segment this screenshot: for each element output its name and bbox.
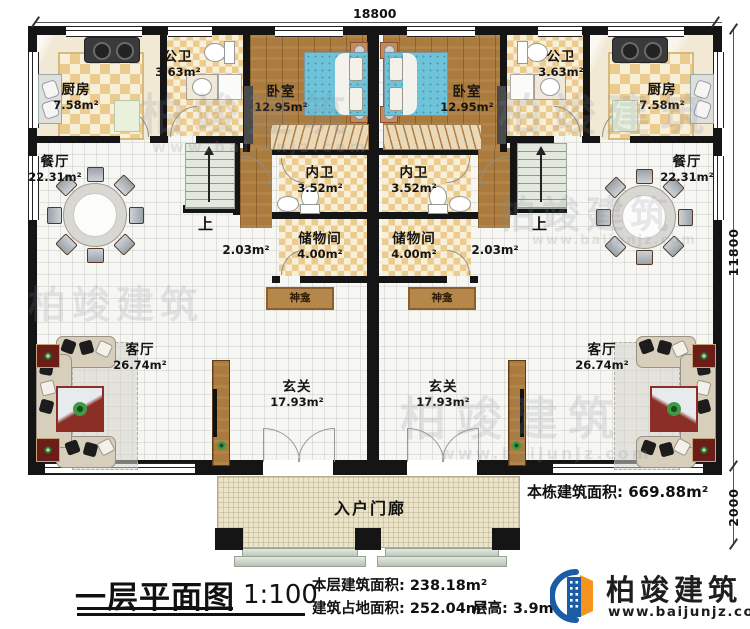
watermark-text: 柏竣建筑 — [28, 286, 204, 324]
floor-plan: 上 上 — [0, 0, 750, 629]
stairs-arrow-head — [536, 146, 546, 155]
burner — [93, 42, 111, 60]
wall-storage-bottom-left — [272, 276, 280, 283]
dining-chair — [47, 207, 62, 224]
room-area: 17.93m² — [257, 396, 337, 410]
plant — [701, 447, 708, 454]
corridor-area-right: 2.03m² — [455, 243, 535, 257]
dimension-top-label: 18800 — [350, 6, 400, 21]
watermark-text: 柏竣建筑 — [140, 94, 356, 138]
toilet-tank — [300, 204, 320, 214]
room-area: 22.31m² — [647, 171, 727, 185]
window — [608, 26, 684, 37]
shrine-label: 神龛 — [432, 292, 453, 304]
room-area: 4.00m² — [280, 248, 360, 262]
porch-column — [215, 528, 243, 550]
floor-area-text: 本层建筑面积: 238.18m² — [312, 574, 487, 595]
plant — [701, 353, 708, 360]
burner — [116, 42, 134, 60]
toilet-tank — [224, 41, 235, 64]
room-label-living-left: 客厅 26.74m² — [100, 343, 180, 372]
dining-chair — [87, 248, 104, 263]
side-table — [36, 344, 60, 368]
room-name: 厨房 — [36, 83, 116, 99]
room-area: 12.95m² — [427, 101, 507, 115]
burner — [644, 42, 662, 60]
window — [713, 52, 724, 128]
building-total-area: 本栋建筑面积: 669.88m² — [527, 481, 708, 502]
room-name: 卧室 — [427, 85, 507, 101]
watermark-url: www.baijunjz.com — [532, 234, 697, 247]
wall-h-left — [36, 136, 120, 143]
plant — [73, 402, 87, 416]
floor-height-text: 层高: 3.9m — [473, 597, 554, 618]
brand-url: www.baijunjz.com — [608, 604, 750, 620]
dining-table-top — [73, 193, 117, 237]
shrine-label: 神龛 — [290, 292, 311, 304]
basin — [277, 196, 299, 212]
porch-label: 入户门廊 — [327, 495, 413, 519]
room-area: 7.58m² — [36, 99, 116, 113]
tv-wall — [212, 360, 230, 466]
room-name: 客厅 — [100, 343, 180, 359]
burner — [621, 42, 639, 60]
room-area: 4.00m² — [374, 248, 454, 262]
tv — [213, 389, 217, 437]
basin — [449, 196, 471, 212]
shrine-left: 神龛 — [266, 287, 334, 310]
room-label-storage-left: 储物间 4.00m² — [280, 232, 360, 261]
window — [168, 26, 212, 37]
brand-logo: 柏竣建筑 www.baijunjz.com — [550, 563, 750, 627]
room-name: 内卫 — [280, 166, 360, 182]
footprint-area-text: 建筑占地面积: 252.04m² — [312, 597, 487, 618]
room-area: 26.74m² — [562, 359, 642, 373]
drawing-scale: 1:100 — [243, 580, 318, 610]
room-area: 22.31m² — [15, 171, 95, 185]
room-area: 3.63m² — [138, 66, 218, 80]
room-label-bath-left: 公卫 3.63m² — [138, 50, 218, 79]
watermark-url: www.baijunjz.com — [440, 446, 651, 462]
room-name: 玄关 — [257, 380, 337, 396]
title-underline — [77, 607, 233, 610]
porch-column — [355, 528, 381, 550]
room-name: 储物间 — [280, 232, 360, 248]
room-name: 客厅 — [562, 343, 642, 359]
room-name: 餐厅 — [647, 155, 727, 171]
pillow — [389, 87, 403, 111]
dimension-porch-label: 2000 — [726, 488, 741, 527]
coffee-table — [56, 386, 104, 432]
room-area: 3.52m² — [280, 182, 360, 196]
room-label-storage-right: 储物间 4.00m² — [374, 232, 454, 261]
watermark-text: 柏竣建筑 — [400, 396, 624, 442]
wardrobe — [383, 124, 482, 150]
room-name: 储物间 — [374, 232, 454, 248]
brand-logo-icon — [550, 565, 602, 629]
toilet-tank — [428, 204, 448, 214]
wall-storage-bottom-left — [300, 276, 368, 283]
room-label-kitchen-left: 厨房 7.58m² — [36, 83, 116, 112]
room-label-innerbath-right: 内卫 3.52m² — [374, 166, 454, 195]
side-table — [692, 438, 716, 462]
dining-chair — [129, 207, 144, 224]
watermark-text: 柏竣建筑 — [498, 94, 714, 138]
window — [538, 26, 582, 37]
plant — [45, 447, 52, 454]
bed-sheet — [403, 53, 417, 115]
wall-storage-bottom-right — [379, 276, 447, 283]
room-label-bath-right: 公卫 3.63m² — [521, 50, 601, 79]
corridor-area-left: 2.03m² — [206, 243, 286, 257]
room-label-innerbath-left: 内卫 3.52m² — [280, 166, 360, 195]
stove — [612, 37, 668, 63]
room-area: 3.52m² — [374, 182, 454, 196]
pillow — [349, 57, 363, 81]
brand-name: 柏竣建筑 — [606, 567, 742, 609]
porch-step — [234, 556, 366, 567]
room-name: 公卫 — [138, 50, 218, 66]
dimension-line-top — [35, 22, 722, 23]
door-opening — [263, 460, 333, 475]
room-name: 公卫 — [521, 50, 601, 66]
coffee-table — [650, 386, 698, 432]
room-name: 内卫 — [374, 166, 454, 182]
stairs-arrow — [208, 154, 210, 202]
room-label-living-right: 客厅 26.74m² — [562, 343, 642, 372]
room-area: 3.63m² — [521, 66, 601, 80]
room-area: 26.74m² — [100, 359, 180, 373]
plant — [667, 402, 681, 416]
dimension-side-label: 11800 — [726, 228, 741, 277]
side-table — [692, 344, 716, 368]
room-label-dining-left: 餐厅 22.31m² — [15, 155, 95, 184]
fridge — [114, 100, 140, 132]
window — [407, 26, 475, 37]
watermark-text: 柏竣建筑 — [498, 196, 674, 234]
porch-step — [377, 556, 507, 567]
window — [275, 26, 343, 37]
stairs-up-label: 上 — [198, 213, 213, 234]
pillow — [389, 57, 403, 81]
plant — [217, 441, 226, 450]
dining-chair — [636, 250, 653, 265]
dimension-tick — [729, 538, 738, 550]
stove — [84, 37, 140, 63]
porch-column — [492, 528, 520, 550]
dining-chair — [678, 209, 693, 226]
watermark-url: www.baijunjz.com — [152, 140, 369, 155]
wall-storage-bottom-right — [470, 276, 478, 283]
room-name: 餐厅 — [15, 155, 95, 171]
room-label-bedroom-right: 卧室 12.95m² — [427, 85, 507, 114]
drawing-title: 一层平面图 — [75, 572, 235, 617]
plant — [45, 353, 52, 360]
window — [66, 26, 142, 37]
wall-innerbath-storage-left — [272, 212, 368, 219]
room-label-dining-right: 餐厅 22.31m² — [647, 155, 727, 184]
shrine-right: 神龛 — [408, 287, 476, 310]
room-label-foyer-left: 玄关 17.93m² — [257, 380, 337, 409]
side-table — [36, 438, 60, 462]
title-underline — [77, 613, 305, 616]
